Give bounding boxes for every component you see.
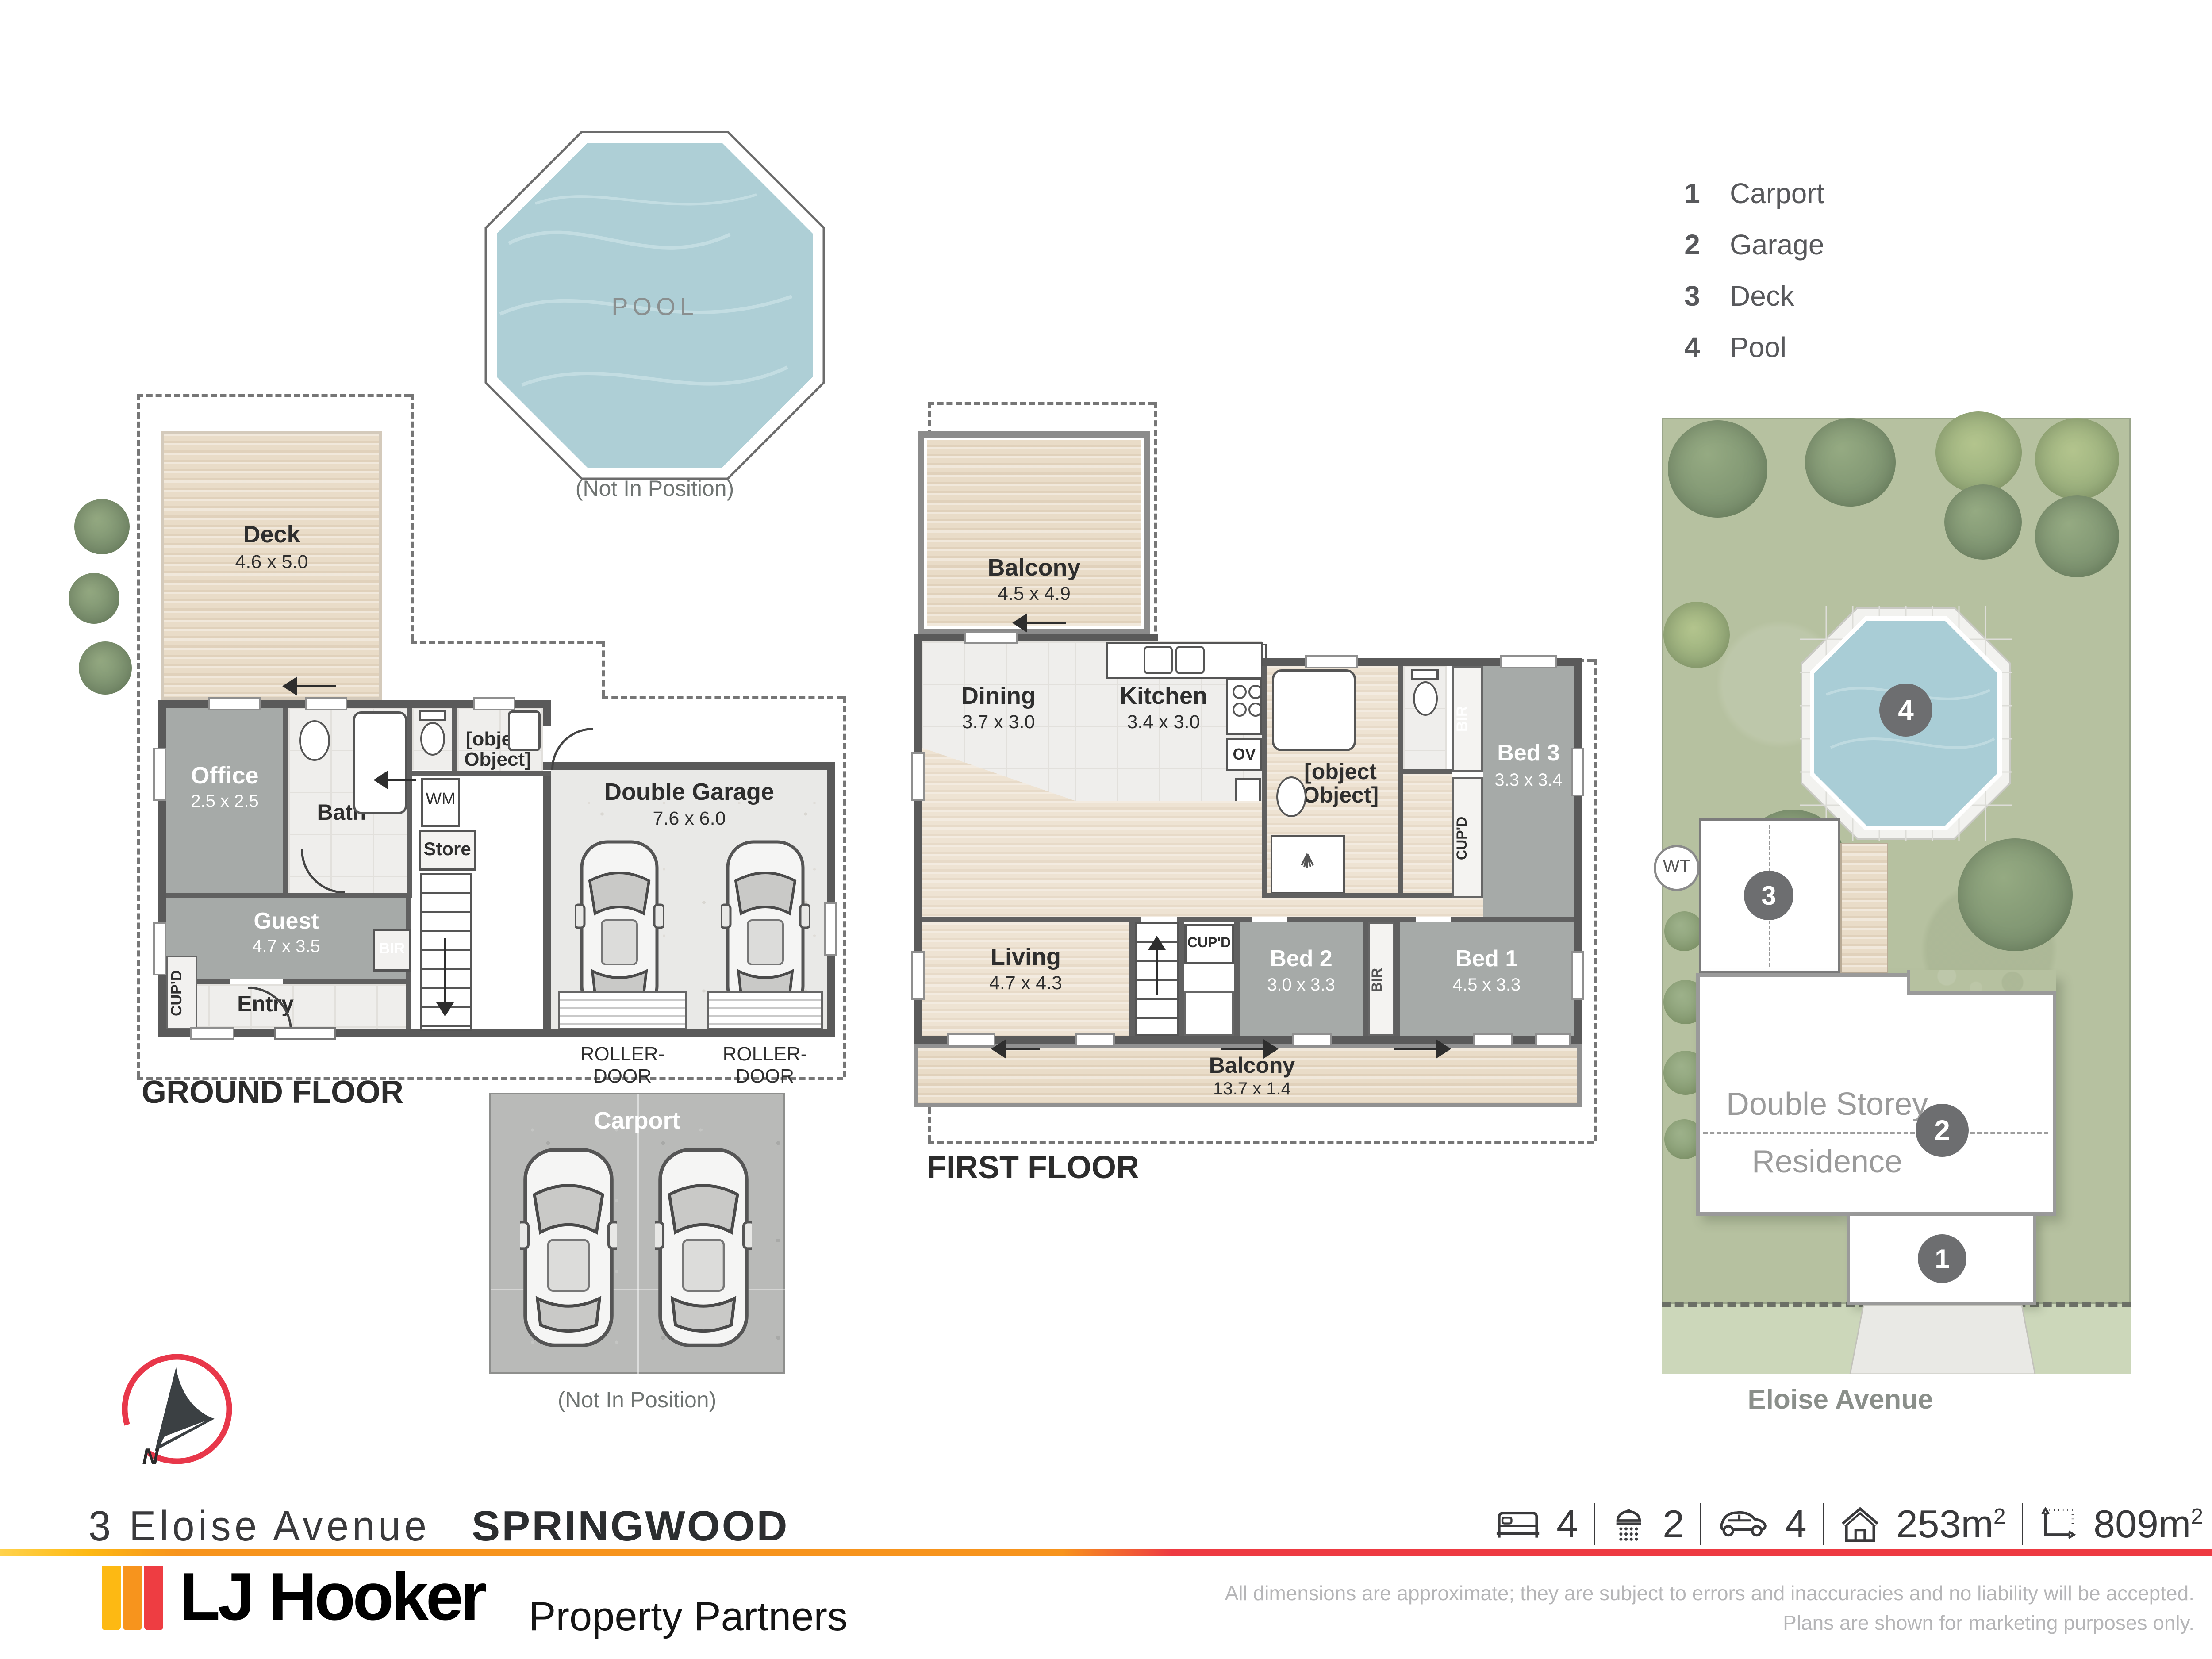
toilet-bowl — [420, 722, 445, 756]
legend-label: Carport — [1730, 177, 1824, 210]
window — [208, 697, 261, 710]
legend-num: 1 — [1677, 177, 1708, 210]
site-marker-carport: 1 — [1918, 1234, 1966, 1283]
gf-stairs-arrow — [444, 938, 446, 1004]
ff-living-dims: 4.7 x 4.3 — [922, 973, 1129, 993]
site-residence-line1: Double Storey — [1703, 1086, 1951, 1122]
ff-mid-wall-d — [1451, 917, 1574, 922]
window — [1571, 748, 1584, 796]
ff-hall — [922, 801, 1262, 917]
stat-divider — [1594, 1503, 1595, 1545]
kitchen-sink-2 — [1175, 646, 1205, 674]
wm-arrowhead — [364, 770, 388, 790]
gf-bir-label: BIR — [373, 940, 411, 957]
site-marker-deck: 3 — [1744, 871, 1793, 920]
site-residence-dash — [1703, 1132, 2048, 1134]
disclaimer-line1: All dimensions are approximate; they are… — [973, 1578, 2194, 1608]
roller-door-1-label: ROLLER-DOOR — [558, 1043, 687, 1087]
pool-plan: POOL — [482, 128, 827, 482]
shower-head-icon — [1292, 849, 1323, 880]
window — [911, 752, 925, 801]
tree — [79, 641, 132, 695]
stat-house-area: 253m2 — [1896, 1502, 2006, 1547]
tree — [74, 499, 130, 554]
window — [1075, 1033, 1115, 1047]
stat-divider — [1700, 1503, 1701, 1545]
gf-boundary-h3 — [602, 696, 843, 699]
legend-item-garage: 2 Garage — [1677, 228, 1986, 268]
window — [305, 697, 347, 710]
legend-label: Garage — [1730, 228, 1824, 261]
cooktop-burner — [1233, 703, 1247, 717]
ff-balcony-bottom-dims: 13.7 x 1.4 — [1119, 1079, 1385, 1098]
tree — [1668, 420, 1767, 518]
ff-kitchen-dims: 3.4 x 3.0 — [1079, 712, 1248, 732]
disclaimer-line2: Plans are shown for marketing purposes o… — [973, 1608, 2194, 1638]
ff-balcony-top-name: Balcony — [918, 555, 1150, 580]
ff-boundary-bottom — [928, 1141, 1594, 1144]
ff-bed2-right-wall — [1363, 922, 1368, 1036]
first-floor-title: FIRST FLOOR — [927, 1149, 1281, 1186]
ff-bir2-label: BIR — [1369, 947, 1394, 1013]
carport-label: Carport — [489, 1108, 785, 1133]
ff-landing — [1184, 991, 1234, 1036]
gf-stairs-arrowhead — [436, 1002, 454, 1025]
site-driveway — [1845, 1305, 2039, 1374]
ff-living-right-wall — [1129, 922, 1135, 1036]
window — [473, 697, 515, 710]
site-wt-label: WT — [1654, 856, 1700, 876]
gf-boundary-v1 — [411, 394, 414, 641]
floorplan-page: POOL (Not In Position) Deck 4.6 x 5.0 Of… — [0, 0, 2212, 1659]
gf-office-right-wall — [283, 708, 288, 898]
gf-row-bottom-wall — [166, 893, 412, 898]
ff-bed3-dims: 3.3 x 3.4 — [1478, 771, 1579, 789]
shower-icon — [1611, 1500, 1647, 1548]
gf-deck-dims: 4.6 x 5.0 — [161, 552, 382, 572]
house-icon — [1840, 1499, 1880, 1550]
compass-north-label: N — [135, 1444, 166, 1470]
ff-toilet-tank — [1411, 669, 1439, 680]
ff-balcony-bottom-name: Balcony — [1119, 1054, 1385, 1077]
ff-col-right-wall — [1234, 922, 1240, 1036]
brand-gradient-bar — [0, 1549, 2212, 1556]
ff-bed2-dims: 3.0 x 3.3 — [1240, 975, 1363, 994]
compass: N — [111, 1343, 243, 1475]
ff-basin — [1276, 776, 1306, 817]
ff-bed1-name: Bed 1 — [1400, 947, 1574, 971]
ff-cupd-label: CUP'D — [1454, 792, 1481, 885]
tree — [69, 573, 119, 624]
roller-door-2-label: ROLLER-DOOR — [707, 1043, 823, 1087]
entry-door-gap — [274, 1027, 336, 1040]
stat-divider — [1823, 1503, 1824, 1545]
legend-item-deck: 3 Deck — [1677, 280, 1986, 319]
pool-note: (Not In Position) — [482, 476, 827, 501]
stat-divider — [2022, 1503, 2023, 1545]
land-icon — [2039, 1500, 2078, 1548]
ff-bir2-right-wall — [1394, 922, 1400, 1036]
window — [911, 951, 925, 1000]
gf-guest-dims: 4.7 x 3.5 — [166, 937, 406, 956]
logo-stripe-yellow — [102, 1566, 121, 1630]
balcony-top-arrowhead — [1002, 613, 1027, 633]
stat-cars: 4 — [1785, 1502, 1807, 1547]
compass-rose-icon — [111, 1343, 243, 1475]
gf-boundary-h2 — [411, 641, 602, 644]
gf-garage-name: Double Garage — [551, 780, 827, 805]
deck-door-arrowhead — [273, 676, 297, 696]
ff-mid-wall-c — [1287, 917, 1416, 922]
legend-item-carport: 1 Carport — [1677, 177, 1986, 217]
gf-wall-right — [827, 762, 835, 1037]
gf-guest-name: Guest — [166, 909, 406, 933]
laundry-sink — [508, 710, 541, 751]
gf-wall-garage-left-a — [543, 700, 551, 726]
stat-baths: 2 — [1663, 1502, 1684, 1547]
tree — [1944, 484, 2022, 560]
ff-balcony-top — [918, 431, 1150, 635]
logo-stripe-red — [144, 1566, 163, 1630]
window — [1292, 1033, 1332, 1047]
cooktop-burner — [1248, 685, 1263, 699]
ff-bed2-name: Bed 2 — [1240, 947, 1363, 971]
ff-dining-name: Dining — [922, 684, 1075, 709]
logo-stripe-orange — [123, 1566, 142, 1630]
gf-wc-wall — [452, 708, 457, 771]
ff-stairs-lower-arrowhead — [1148, 927, 1166, 950]
kitchen-sink — [1144, 646, 1173, 674]
carport-car-2 — [655, 1146, 752, 1349]
ff-hall-2 — [1262, 898, 1483, 917]
ff-bir-label: BIR — [1454, 675, 1481, 763]
window — [824, 902, 837, 956]
balcony-door-arrow-3 — [1394, 1048, 1438, 1050]
tree — [2035, 495, 2119, 577]
legend-num: 3 — [1677, 280, 1708, 312]
palm-tree — [2035, 418, 2119, 500]
disclaimer: All dimensions are approximate; they are… — [973, 1578, 2194, 1637]
legend-num: 2 — [1677, 228, 1708, 261]
ff-bath-left-wall — [1262, 666, 1267, 898]
ff-bath-right-wall — [1398, 666, 1403, 898]
site-marker-pool: 4 — [1879, 684, 1932, 737]
toilet-tank — [419, 710, 446, 721]
carport-car-1 — [520, 1146, 617, 1349]
ff-bed1-dims: 4.5 x 3.3 — [1400, 975, 1574, 994]
cooktop-burner — [1248, 703, 1263, 717]
roller-door-2 — [707, 991, 823, 1029]
address-bar: 3 Eloise Avenue SPRINGWOOD — [88, 1502, 1239, 1551]
gf-wm-label: WM — [421, 790, 460, 809]
window — [1500, 655, 1557, 668]
stat-beds: 4 — [1556, 1502, 1578, 1547]
gf-garage-dims: 7.6 x 6.0 — [551, 809, 827, 829]
window — [947, 1033, 995, 1047]
ff-boundary-right — [1594, 659, 1597, 1141]
ff-mid-wall-b — [1177, 917, 1252, 922]
brand-name: LJ Hooker — [179, 1558, 484, 1636]
gf-wall-garage-left-b — [543, 774, 551, 1037]
oven-label: OV — [1226, 745, 1262, 764]
garage-door-arc — [551, 728, 593, 770]
gf-boundary-right — [843, 696, 846, 1077]
ff-toilet-bowl — [1413, 681, 1438, 716]
window — [153, 748, 166, 801]
window — [153, 922, 166, 975]
balcony-door-arrowhead-3 — [1436, 1039, 1461, 1059]
site-marker-garage: 2 — [1916, 1104, 1969, 1157]
site-residence-notch — [1907, 970, 2056, 995]
gf-ldry-bottom-wall — [412, 771, 551, 776]
ff-bed3 — [1483, 666, 1574, 922]
gf-boundary-top — [137, 394, 411, 397]
ff-wc-bottom-wall — [1403, 769, 1452, 774]
bush — [1664, 911, 1704, 951]
garage-car-2 — [721, 838, 810, 1015]
ff-stairs-lower-arrow — [1156, 942, 1158, 995]
window — [1305, 655, 1358, 668]
bathtub — [353, 711, 407, 814]
window — [190, 1027, 234, 1040]
gf-boundary-left — [137, 394, 140, 1077]
ff-hall-3 — [1403, 774, 1452, 898]
pool-label: POOL — [482, 292, 827, 321]
ff-wall-top-left — [914, 634, 1158, 641]
ff-kitchen-name: Kitchen — [1079, 684, 1248, 709]
car-icon — [1717, 1501, 1769, 1548]
gf-bath-right-wall — [407, 708, 412, 893]
ff-bathtub — [1272, 669, 1356, 751]
palm-tree — [1935, 411, 2022, 493]
ground-floor-title: GROUND FLOOR — [142, 1074, 495, 1110]
site-deck-wood — [1840, 843, 1888, 973]
ff-dining-dims: 3.7 x 3.0 — [922, 712, 1075, 732]
ff-bed3-name: Bed 3 — [1478, 741, 1579, 765]
brand-sub: Property Partners — [529, 1594, 848, 1640]
window — [1535, 1033, 1571, 1047]
stat-land-area: 809m2 — [2093, 1502, 2203, 1547]
gf-deck-name: Deck — [161, 522, 382, 547]
ff-boundary-top — [928, 402, 1154, 405]
ff-bath-bottom-wall — [1262, 893, 1452, 898]
gf-entry-wall-b — [283, 979, 406, 984]
balcony-door-arrowhead-2 — [1263, 1039, 1288, 1059]
ff-stairs-right-wall — [1179, 922, 1184, 1036]
legend-label: Deck — [1730, 280, 1794, 312]
property-stats: 4 2 4 253m2 — [1495, 1495, 2203, 1553]
gf-office-dims: 2.5 x 2.5 — [166, 792, 283, 810]
balcony-door-arrow-2 — [1221, 1048, 1265, 1050]
bed-icon — [1495, 1502, 1540, 1546]
tree — [1958, 838, 2073, 951]
gf-store-label: Store — [419, 838, 476, 860]
address-suburb: SPRINGWOOD — [472, 1502, 789, 1550]
roller-door-1 — [558, 991, 687, 1029]
carport-note: (Not In Position) — [489, 1387, 785, 1413]
window — [1473, 1033, 1513, 1047]
gf-cupd-label: CUP'D — [168, 962, 196, 1024]
basin — [299, 720, 330, 761]
legend-label: Pool — [1730, 331, 1786, 364]
address-street: 3 Eloise Avenue — [88, 1502, 430, 1551]
gf-office-name: Office — [166, 763, 283, 788]
site-street-label: Eloise Avenue — [1694, 1384, 1986, 1415]
ff-balcony-top-dims: 4.5 x 4.9 — [918, 584, 1150, 604]
site-residence-line2: Residence — [1703, 1144, 1951, 1180]
tree — [1805, 418, 1896, 507]
garage-car-1 — [575, 838, 664, 1015]
gf-boundary-v2 — [602, 641, 605, 696]
palm-tree — [1663, 602, 1730, 668]
ff-living-name: Living — [922, 945, 1129, 970]
ff-cupd-box-label: CUP'D — [1184, 934, 1234, 951]
legend-num: 4 — [1677, 331, 1708, 364]
window — [964, 631, 1018, 644]
ff-mid-wall-a — [922, 917, 1141, 922]
cooktop-burner — [1233, 685, 1247, 699]
window — [1571, 951, 1584, 1000]
legend-item-pool: 4 Pool — [1677, 331, 1986, 371]
